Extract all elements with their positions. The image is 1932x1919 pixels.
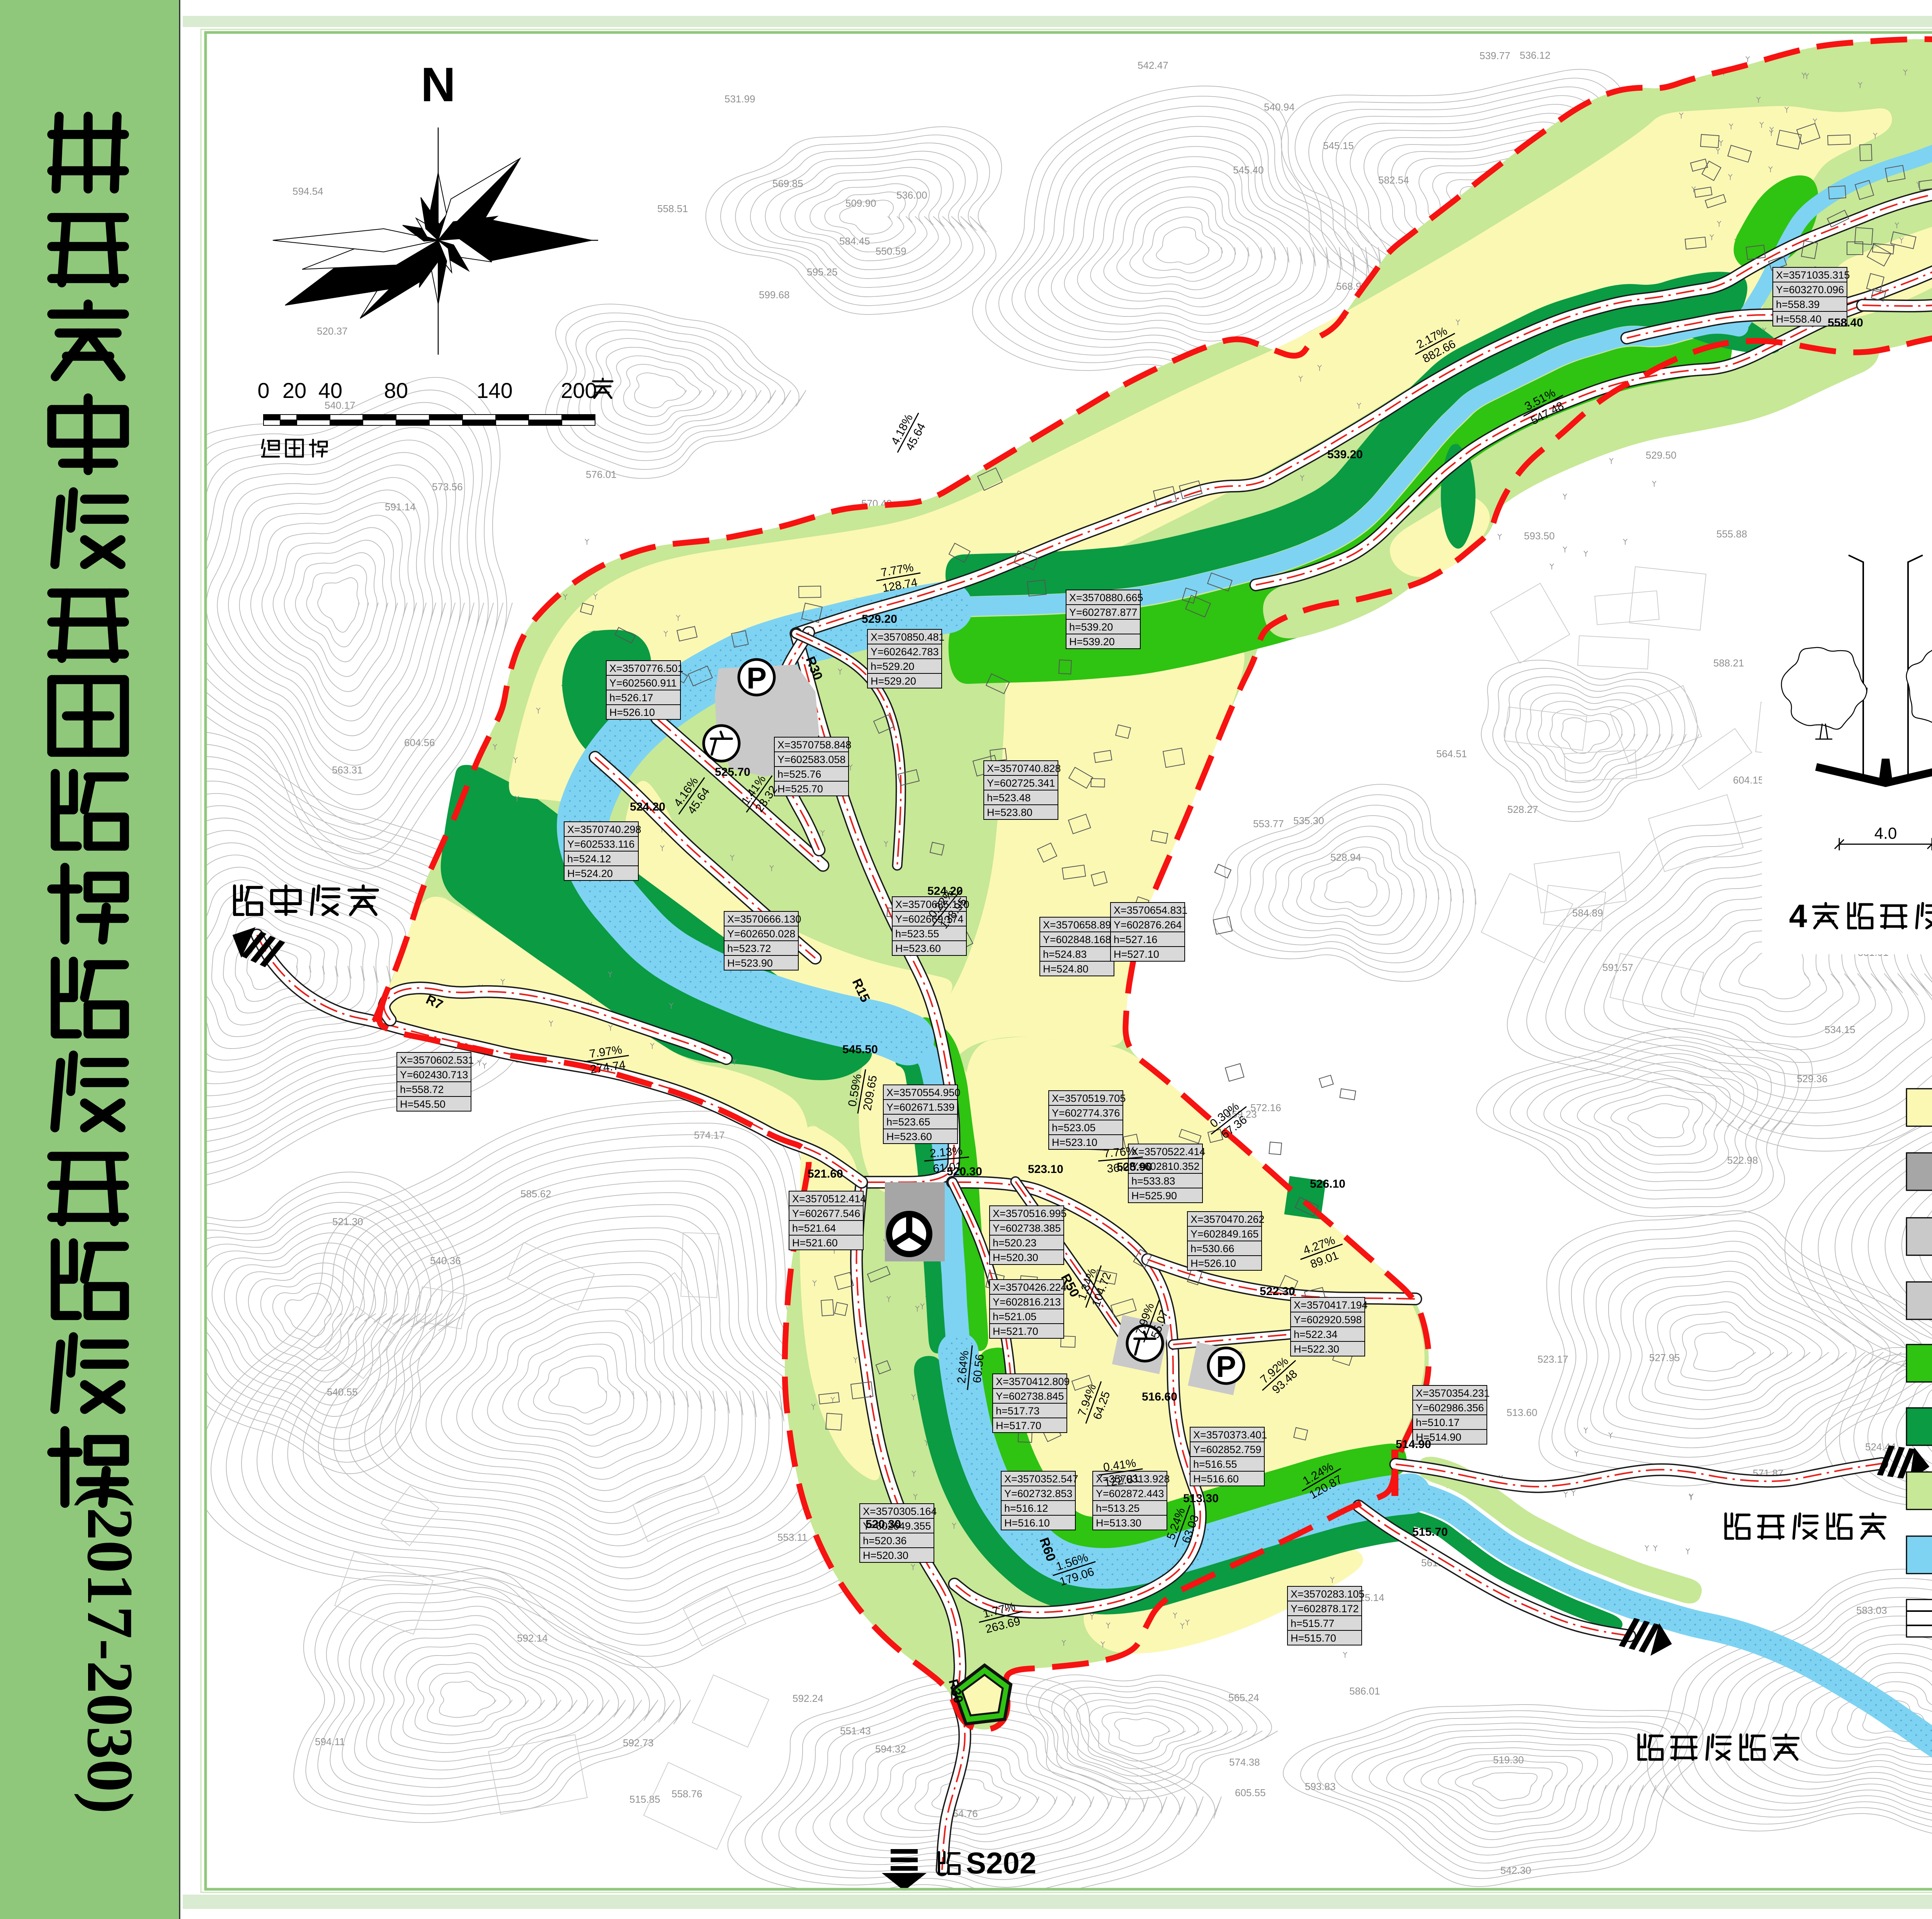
svg-text:X=3570470.262: X=3570470.262 <box>1190 1214 1264 1225</box>
svg-text:X=3570740.298: X=3570740.298 <box>567 824 641 835</box>
svg-text:H=529.20: H=529.20 <box>871 675 916 687</box>
svg-text:584.45: 584.45 <box>839 235 870 247</box>
svg-text:Y=602849.165: Y=602849.165 <box>1190 1228 1259 1240</box>
svg-text:H=520.30: H=520.30 <box>993 1252 1038 1263</box>
svg-text:574.17: 574.17 <box>694 1129 725 1141</box>
svg-text:564.51: 564.51 <box>1436 748 1467 760</box>
svg-text:H=525.70: H=525.70 <box>777 783 823 795</box>
svg-text:558.40: 558.40 <box>1828 316 1863 329</box>
svg-text:Y=602852.759: Y=602852.759 <box>1193 1444 1261 1455</box>
svg-text:H=545.50: H=545.50 <box>400 1098 446 1110</box>
svg-text:200: 200 <box>561 378 597 403</box>
svg-text:H=523.60: H=523.60 <box>895 943 941 954</box>
svg-text:550.59: 550.59 <box>876 245 906 257</box>
svg-text:Y=602774.376: Y=602774.376 <box>1052 1107 1120 1119</box>
svg-text:586.01: 586.01 <box>1349 1685 1380 1697</box>
svg-text:X=3570740.828: X=3570740.828 <box>987 763 1061 774</box>
svg-text:523.17: 523.17 <box>1537 1353 1568 1365</box>
svg-text:528.94: 528.94 <box>1330 852 1361 863</box>
svg-text:521.60: 521.60 <box>808 1168 843 1180</box>
svg-text:536.00: 536.00 <box>896 189 927 201</box>
svg-text:H=523.80: H=523.80 <box>987 807 1032 818</box>
svg-text:h=558.72: h=558.72 <box>400 1084 444 1095</box>
svg-text:Y=602816.213: Y=602816.213 <box>993 1296 1061 1308</box>
svg-text:X=3570516.995: X=3570516.995 <box>993 1208 1066 1219</box>
svg-text:523.10: 523.10 <box>1028 1163 1063 1176</box>
svg-text:X=3570352.547: X=3570352.547 <box>1004 1473 1078 1485</box>
svg-text:h=520.36: h=520.36 <box>863 1535 906 1547</box>
svg-text:X=3570412.809: X=3570412.809 <box>996 1376 1070 1387</box>
svg-text:h=521.64: h=521.64 <box>792 1222 836 1234</box>
svg-text:H=520.30: H=520.30 <box>863 1550 908 1561</box>
svg-text:H=523.90: H=523.90 <box>727 957 773 969</box>
svg-text:591.14: 591.14 <box>385 501 416 513</box>
svg-text:522.98: 522.98 <box>1727 1154 1758 1166</box>
svg-text:X=3570758.848: X=3570758.848 <box>777 739 851 751</box>
svg-text:4: 4 <box>1789 898 1807 934</box>
svg-text:H=516.10: H=516.10 <box>1004 1517 1050 1529</box>
svg-text:582.54: 582.54 <box>1378 174 1409 186</box>
svg-text:520.30: 520.30 <box>947 1165 982 1178</box>
svg-text:551.43: 551.43 <box>840 1725 871 1737</box>
svg-text:h=523.48: h=523.48 <box>987 792 1031 804</box>
svg-text:553.77: 553.77 <box>1253 818 1284 829</box>
svg-text:513.30: 513.30 <box>1183 1492 1219 1505</box>
svg-text:Y=602878.172: Y=602878.172 <box>1291 1603 1359 1615</box>
svg-text:H=522.30: H=522.30 <box>1294 1343 1339 1355</box>
svg-text:574.38: 574.38 <box>1229 1756 1260 1768</box>
svg-text:515.85: 515.85 <box>629 1793 660 1805</box>
svg-text:h=520.23: h=520.23 <box>993 1237 1036 1249</box>
svg-text:h=527.16: h=527.16 <box>1114 934 1157 945</box>
svg-text:605.55: 605.55 <box>1235 1787 1266 1798</box>
svg-text:X=3570554.950: X=3570554.950 <box>886 1087 960 1098</box>
svg-text:h=529.20: h=529.20 <box>871 661 914 672</box>
svg-text:573.56: 573.56 <box>432 481 463 493</box>
svg-text:604.15: 604.15 <box>1733 774 1764 786</box>
svg-text:545.50: 545.50 <box>842 1043 878 1056</box>
svg-text:H=558.40: H=558.40 <box>1776 313 1821 325</box>
svg-text:X=3570666.130: X=3570666.130 <box>727 913 801 925</box>
svg-text:531.99: 531.99 <box>724 93 755 105</box>
svg-text:599.68: 599.68 <box>759 289 790 301</box>
svg-text:h=516.55: h=516.55 <box>1193 1458 1237 1470</box>
svg-text:509.90: 509.90 <box>845 197 876 209</box>
svg-text:140: 140 <box>476 378 512 403</box>
svg-text:H=521.60: H=521.60 <box>792 1237 838 1249</box>
svg-text:N: N <box>421 58 456 112</box>
svg-text:H=517.70: H=517.70 <box>996 1420 1041 1431</box>
svg-text:H=527.10: H=527.10 <box>1114 948 1159 960</box>
svg-text:539.77: 539.77 <box>1480 50 1510 61</box>
svg-text:X=3570522.414: X=3570522.414 <box>1131 1146 1205 1158</box>
svg-text:519.30: 519.30 <box>1493 1754 1524 1766</box>
svg-text:X=3570776.501: X=3570776.501 <box>609 663 683 674</box>
svg-text:Y=602533.116: Y=602533.116 <box>567 838 634 850</box>
svg-text:X=3571035.315: X=3571035.315 <box>1776 269 1850 281</box>
svg-text:20: 20 <box>282 378 306 403</box>
svg-text:539.20: 539.20 <box>1327 448 1363 461</box>
svg-text:595.25: 595.25 <box>807 266 838 278</box>
svg-text:X=3570417.194: X=3570417.194 <box>1294 1299 1367 1311</box>
svg-text:542.47: 542.47 <box>1138 59 1168 71</box>
svg-text:555.88: 555.88 <box>1716 528 1747 540</box>
svg-text:Y=602671.539: Y=602671.539 <box>886 1101 954 1113</box>
svg-text:h=510.17: h=510.17 <box>1416 1417 1459 1428</box>
svg-text:Y=602725.341: Y=602725.341 <box>987 777 1055 789</box>
svg-text:Y=602738.385: Y=602738.385 <box>993 1222 1061 1234</box>
svg-text:h=525.76: h=525.76 <box>777 768 821 780</box>
svg-text:594.54: 594.54 <box>293 185 323 197</box>
svg-text:558.76: 558.76 <box>672 1788 702 1800</box>
svg-text:592.73: 592.73 <box>623 1737 654 1749</box>
svg-text:Y=602560.911: Y=602560.911 <box>609 677 677 689</box>
svg-text:H=515.70: H=515.70 <box>1291 1632 1336 1644</box>
svg-text:Y=602583.058: Y=602583.058 <box>777 754 845 765</box>
svg-text:594.11: 594.11 <box>315 1736 345 1747</box>
svg-text:P: P <box>747 661 767 695</box>
svg-text:h=523.72: h=523.72 <box>727 943 771 954</box>
svg-text:X=3570519.705: X=3570519.705 <box>1052 1093 1126 1104</box>
svg-text:594.32: 594.32 <box>875 1743 906 1755</box>
svg-text:592.24: 592.24 <box>793 1693 823 1704</box>
svg-text:H=524.20: H=524.20 <box>567 868 613 879</box>
svg-text:H=516.60: H=516.60 <box>1193 1473 1239 1485</box>
svg-text:X=3570654.831: X=3570654.831 <box>1114 904 1187 916</box>
svg-text:h=530.66: h=530.66 <box>1190 1243 1234 1254</box>
svg-text:545.40: 545.40 <box>1233 164 1264 176</box>
svg-text:X=3570880.665: X=3570880.665 <box>1069 592 1143 603</box>
svg-text:536.12: 536.12 <box>1520 49 1551 61</box>
svg-text:X=3570305.164: X=3570305.164 <box>863 1506 937 1517</box>
svg-text:583.03: 583.03 <box>1856 1605 1887 1616</box>
svg-text:592.14: 592.14 <box>517 1632 548 1644</box>
svg-text:553.11: 553.11 <box>777 1531 808 1543</box>
svg-text:540.36: 540.36 <box>430 1255 461 1266</box>
svg-text:527.95: 527.95 <box>1649 1352 1680 1363</box>
svg-text:529.50: 529.50 <box>1646 449 1677 461</box>
svg-text:X=3570354.231: X=3570354.231 <box>1416 1387 1490 1399</box>
svg-text:H=525.90: H=525.90 <box>1131 1190 1177 1202</box>
svg-text:Y=602986.356: Y=602986.356 <box>1416 1402 1484 1414</box>
svg-text:Y=602872.443: Y=602872.443 <box>1096 1488 1164 1499</box>
svg-text:520.37: 520.37 <box>317 325 348 337</box>
svg-text:H=521.70: H=521.70 <box>993 1326 1038 1337</box>
svg-text:524.20: 524.20 <box>927 885 963 897</box>
svg-text:526.10: 526.10 <box>1310 1178 1345 1190</box>
svg-text:572.16: 572.16 <box>1250 1102 1281 1113</box>
svg-text:h=558.39: h=558.39 <box>1776 299 1820 310</box>
svg-text:Y=602677.546: Y=602677.546 <box>792 1208 860 1219</box>
svg-text:576.01: 576.01 <box>586 469 617 480</box>
svg-text:H=524.80: H=524.80 <box>1043 963 1088 975</box>
svg-text:Y=602738.845: Y=602738.845 <box>996 1390 1064 1402</box>
svg-text:Y=602732.853: Y=602732.853 <box>1004 1488 1072 1499</box>
svg-text:h=533.83: h=533.83 <box>1131 1175 1175 1187</box>
svg-text:513.60: 513.60 <box>1507 1407 1537 1418</box>
svg-text:565.24: 565.24 <box>1228 1692 1259 1703</box>
svg-text:584.89: 584.89 <box>1572 907 1603 919</box>
svg-text:588.21: 588.21 <box>1713 657 1744 669</box>
svg-text:H=526.10: H=526.10 <box>1190 1258 1236 1269</box>
svg-text:569.85: 569.85 <box>772 178 803 189</box>
svg-text:Y=602787.877: Y=602787.877 <box>1069 607 1137 618</box>
svg-text:X=3570602.531: X=3570602.531 <box>400 1054 474 1066</box>
svg-text:H=523.10: H=523.10 <box>1052 1137 1097 1148</box>
svg-text:H=523.60: H=523.60 <box>886 1131 932 1142</box>
svg-text:H=526.10: H=526.10 <box>609 707 655 718</box>
svg-text:h=539.20: h=539.20 <box>1069 621 1113 633</box>
svg-text:563.31: 563.31 <box>332 764 363 776</box>
svg-text:542.30: 542.30 <box>1500 1865 1531 1876</box>
svg-text:h=516.12: h=516.12 <box>1004 1503 1048 1514</box>
svg-text:H=539.20: H=539.20 <box>1069 636 1115 648</box>
svg-text:X=3570426.224: X=3570426.224 <box>993 1282 1066 1293</box>
svg-text:540.94: 540.94 <box>1264 101 1295 113</box>
svg-text:h=523.65: h=523.65 <box>886 1116 930 1128</box>
svg-text:h=524.83: h=524.83 <box>1043 948 1087 960</box>
svg-text:604.56: 604.56 <box>404 737 435 748</box>
svg-text:558.51: 558.51 <box>657 203 688 214</box>
svg-text:P: P <box>1216 1350 1236 1384</box>
svg-text:514.90: 514.90 <box>1396 1438 1431 1451</box>
svg-text:X=3570850.481: X=3570850.481 <box>871 631 944 643</box>
svg-text:X=3570283.105: X=3570283.105 <box>1291 1588 1364 1600</box>
svg-text:4.0: 4.0 <box>1874 824 1897 842</box>
svg-text:X=3570512.414: X=3570512.414 <box>792 1193 866 1205</box>
svg-text:h=523.05: h=523.05 <box>1052 1122 1095 1134</box>
svg-text:h=524.12: h=524.12 <box>567 853 611 865</box>
svg-text:529.36: 529.36 <box>1797 1073 1828 1084</box>
svg-text:529.20: 529.20 <box>862 613 897 626</box>
svg-text:h=523.55: h=523.55 <box>895 928 939 940</box>
svg-text:516.60: 516.60 <box>1142 1390 1177 1403</box>
svg-text:515.70: 515.70 <box>1412 1526 1448 1538</box>
svg-text:h=513.25: h=513.25 <box>1096 1503 1139 1514</box>
svg-text:525.70: 525.70 <box>715 766 750 778</box>
svg-text:(2017-2030): (2017-2030) <box>74 1486 146 1814</box>
svg-text:h=515.77: h=515.77 <box>1291 1618 1334 1629</box>
svg-text:h=521.05: h=521.05 <box>993 1311 1036 1322</box>
svg-text:40: 40 <box>318 378 342 403</box>
svg-text:X=3570658.892: X=3570658.892 <box>1043 919 1117 931</box>
svg-text:S202: S202 <box>966 1846 1036 1880</box>
svg-text:520.30: 520.30 <box>866 1518 901 1531</box>
svg-text:X=3570373.401: X=3570373.401 <box>1193 1429 1267 1441</box>
svg-text:Y=603270.096: Y=603270.096 <box>1776 284 1844 296</box>
svg-text:H=513.30: H=513.30 <box>1096 1517 1141 1529</box>
svg-text:80: 80 <box>384 378 408 403</box>
svg-text:Y=602642.783: Y=602642.783 <box>871 646 939 658</box>
svg-text:525.90: 525.90 <box>1117 1161 1152 1173</box>
svg-text:Y=602920.598: Y=602920.598 <box>1294 1314 1362 1326</box>
svg-text:Y=602848.168: Y=602848.168 <box>1043 934 1111 945</box>
svg-text:h=526.17: h=526.17 <box>609 692 653 704</box>
svg-text:593.83: 593.83 <box>1305 1781 1336 1792</box>
svg-text:521.30: 521.30 <box>332 1216 363 1227</box>
svg-text:Y=602876.264: Y=602876.264 <box>1114 919 1182 931</box>
svg-text:593.50: 593.50 <box>1524 530 1555 542</box>
svg-text:Y=602650.028: Y=602650.028 <box>727 928 795 940</box>
svg-text:522.30: 522.30 <box>1260 1285 1295 1298</box>
svg-text:Y=602430.713: Y=602430.713 <box>400 1069 468 1081</box>
svg-text:545.15: 545.15 <box>1323 140 1354 151</box>
svg-text:h=517.73: h=517.73 <box>996 1405 1039 1417</box>
svg-text:535.30: 535.30 <box>1293 815 1324 826</box>
svg-text:534.15: 534.15 <box>1825 1024 1855 1035</box>
svg-text:528.27: 528.27 <box>1507 804 1538 815</box>
svg-text:0: 0 <box>257 378 269 403</box>
svg-text:585.62: 585.62 <box>520 1188 551 1200</box>
svg-text:h=522.34: h=522.34 <box>1294 1329 1337 1340</box>
svg-text:540.55: 540.55 <box>327 1386 358 1398</box>
svg-text:524.20: 524.20 <box>630 801 665 813</box>
